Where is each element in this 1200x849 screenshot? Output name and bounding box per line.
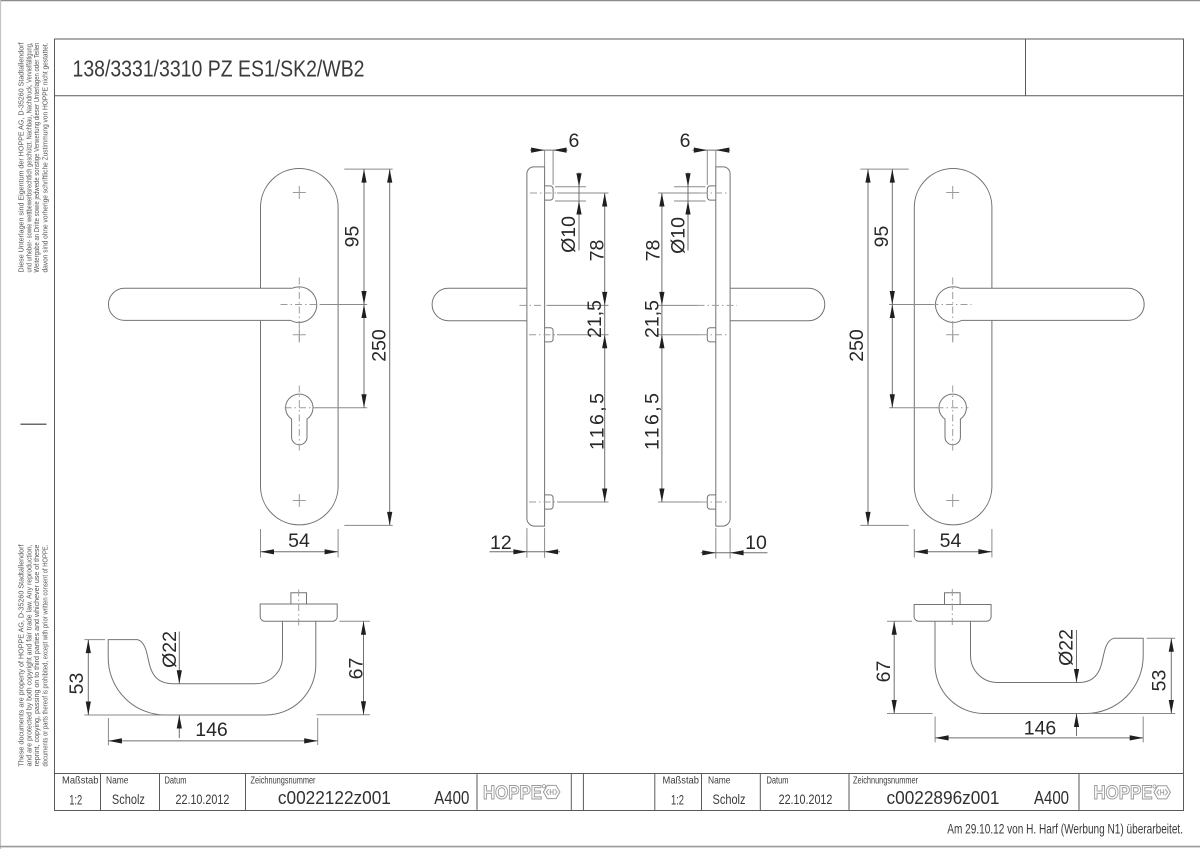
svg-text:HOPPE: HOPPE [1094, 783, 1153, 804]
svg-text:78: 78 [586, 240, 608, 262]
svg-text:250: 250 [846, 329, 868, 362]
svg-text:Scholz: Scholz [112, 791, 145, 807]
svg-text:53: 53 [66, 673, 88, 695]
svg-text:53: 53 [1149, 670, 1171, 692]
svg-text:10: 10 [745, 532, 767, 554]
svg-text:22.10.2012: 22.10.2012 [176, 791, 230, 807]
svg-text:116,5: 116,5 [587, 393, 609, 450]
svg-text:Ø22: Ø22 [1055, 629, 1077, 666]
svg-text:95: 95 [342, 226, 364, 248]
svg-text:116,5: 116,5 [642, 393, 664, 450]
svg-text:davon sind ohne vorherige schr: davon sind ohne vorherige schriftliche Z… [42, 42, 49, 272]
svg-text:Datum: Datum [165, 776, 187, 787]
svg-text:A400: A400 [1034, 788, 1069, 808]
svg-text:146: 146 [195, 719, 228, 741]
svg-text:Ø10: Ø10 [667, 217, 689, 254]
svg-text:78: 78 [643, 240, 665, 262]
svg-text:Weitergabe an Dritte sowie jed: Weitergabe an Dritte sowie jedwede sonst… [34, 42, 41, 272]
svg-text:54: 54 [940, 530, 962, 552]
svg-text:Maßstab: Maßstab [62, 776, 99, 787]
svg-text:Ø22: Ø22 [159, 631, 181, 668]
svg-text:54: 54 [288, 530, 310, 552]
svg-text:Ø10: Ø10 [558, 216, 580, 253]
svg-text:22.10.2012: 22.10.2012 [779, 791, 833, 807]
svg-text:reprint, copying, passing on t: reprint, copying, passing on to third pa… [34, 544, 41, 766]
svg-text:21,5: 21,5 [584, 300, 606, 338]
svg-text:und urheber- sowie wettbewerbs: und urheber- sowie wettbewerbsrechtlich … [26, 42, 33, 272]
svg-text:21,5: 21,5 [642, 300, 664, 338]
svg-text:Diese Unterlagen sind Eigentum: Diese Unterlagen sind Eigentum der HOPPE… [19, 42, 26, 272]
svg-text:Name: Name [708, 776, 731, 787]
svg-text:138/3331/3310 PZ ES1/SK2/WB2: 138/3331/3310 PZ ES1/SK2/WB2 [73, 56, 365, 82]
svg-text:Zeichnungsnummer: Zeichnungsnummer [251, 776, 317, 787]
svg-text:Zeichnungsnummer: Zeichnungsnummer [853, 776, 919, 787]
svg-text:6: 6 [680, 130, 691, 152]
svg-text:c0022896z001: c0022896z001 [887, 788, 1000, 808]
svg-text:1:2: 1:2 [69, 792, 82, 808]
svg-text:HOPPE: HOPPE [483, 783, 542, 804]
svg-text:documents or parts thereof is: documents or parts thereof is prohibited… [42, 544, 49, 766]
svg-text:and are protected by both copy: and are protected by both copyright and … [26, 544, 33, 766]
svg-text:Scholz: Scholz [713, 791, 746, 807]
svg-text:Am 29.10.12 von H. Harf (Werbu: Am 29.10.12 von H. Harf (Werbung N1) übe… [947, 821, 1183, 837]
svg-text:Datum: Datum [767, 776, 789, 787]
svg-text:6: 6 [568, 130, 579, 152]
svg-text:Maßstab: Maßstab [663, 776, 700, 787]
svg-text:12: 12 [490, 532, 512, 554]
svg-text:Name: Name [106, 776, 129, 787]
svg-text:1:2: 1:2 [671, 792, 684, 808]
svg-text:67: 67 [345, 658, 367, 680]
svg-text:c0022122z001: c0022122z001 [278, 788, 391, 808]
svg-text:250: 250 [369, 329, 391, 362]
svg-text:146: 146 [1024, 718, 1057, 740]
svg-text:95: 95 [871, 226, 893, 248]
svg-text:67: 67 [873, 661, 895, 683]
svg-text:A400: A400 [434, 788, 469, 808]
svg-text:These documents are property o: These documents are property of HOPPE AG… [19, 544, 26, 766]
